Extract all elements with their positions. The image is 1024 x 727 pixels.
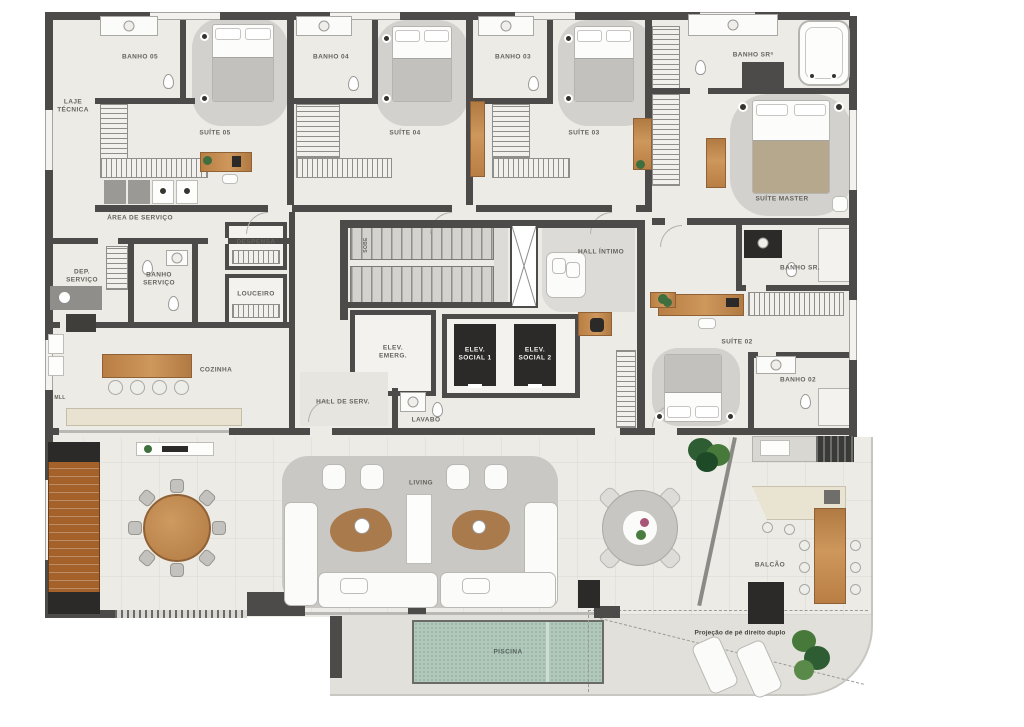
suite03-lamp-1 [564, 34, 573, 43]
wall-banho-sr-l [736, 225, 742, 290]
suite05-lamp-1 [200, 32, 209, 41]
label-banho-03: BANHO 03 [495, 54, 531, 61]
living-armchair-3 [446, 464, 470, 490]
adega-unit [48, 442, 100, 614]
suite03-closet-left [492, 104, 530, 158]
wall-suites-bottom [95, 205, 645, 212]
kitchen-counter [66, 408, 242, 426]
stairs-landing [494, 226, 508, 304]
label-lavabo: LAVABO [412, 417, 441, 424]
suite05-chair [222, 174, 238, 184]
wall-core-left [340, 220, 348, 320]
hall-desk-chair [590, 318, 604, 332]
suite04-lamp-1 [382, 34, 391, 43]
wall-varanda-1 [45, 428, 59, 435]
wall-core-top [340, 220, 645, 228]
wall-kitchen-core [289, 205, 295, 435]
door-hallserv [310, 428, 332, 435]
suite02-lamp-2 [726, 412, 735, 421]
deck-wall-left [330, 616, 342, 678]
balcao-stool-6 [850, 540, 861, 551]
wall-banho05-r [180, 12, 186, 102]
label-louceiro: LOUCEIRO [237, 291, 274, 298]
door-suite02 [655, 428, 677, 435]
label-elev-emerg: ELEV. EMERG. [373, 345, 413, 362]
label-banho-servico: BANHO SERVIÇO [137, 272, 181, 289]
wall-right [849, 16, 857, 437]
balcao-stool-2 [784, 524, 795, 535]
door-master [665, 218, 687, 225]
island-stool-1 [108, 380, 123, 395]
wall-banho-sra-block [742, 62, 784, 92]
elevator-shaft-x [510, 224, 538, 308]
terrace-pillar-2 [578, 580, 600, 608]
elev2-door [528, 384, 542, 388]
washer-1-door [158, 186, 168, 196]
sliding-door-living [305, 612, 595, 615]
label-banho-sr: BANHO SR. [780, 265, 820, 272]
suite02-closet [748, 292, 844, 316]
wall-bserv-r [192, 244, 198, 324]
suite04-bed [392, 26, 452, 102]
banho-sra-tap-2 [830, 72, 838, 80]
label-banho-05: BANHO 05 [122, 54, 158, 61]
sliding-door-kitchen [59, 430, 229, 433]
suite02-lamp-1 [655, 412, 664, 421]
gourmet-sink [760, 440, 790, 456]
hall-intimo-pillow [552, 258, 566, 274]
master-cabinet [706, 138, 726, 188]
label-suite-03: SUÍTE 03 [568, 130, 599, 137]
living-sofa-bottom-1 [318, 572, 438, 608]
suite03-plant [636, 160, 645, 169]
wall-banho02-l [748, 352, 754, 430]
door-suite03 [612, 205, 636, 212]
label-dep-servico: DEP. SERVIÇO [60, 269, 104, 286]
balcao-item [824, 490, 840, 504]
label-projecao: Projeção de pé direito duplo [694, 630, 785, 637]
label-elev-social-1: ELEV. SOCIAL 1 [457, 347, 493, 364]
living-armchair-1 [322, 464, 346, 490]
suite03-wardrobe [470, 101, 485, 177]
laundry-machine-2 [128, 180, 150, 204]
label-banho-04: BANHO 04 [313, 54, 349, 61]
console-plant [144, 445, 152, 453]
wall-banho03-r [547, 12, 553, 102]
dining-chair-5 [170, 563, 184, 577]
suite04-lamp-2 [382, 94, 391, 103]
adega-top [48, 442, 100, 462]
banho04-toilet [348, 76, 359, 91]
island-stool-4 [174, 380, 189, 395]
terrace-table-flower [640, 518, 649, 527]
label-hall-serv: HALL DE SERV. [316, 399, 370, 406]
living-cushion-1 [340, 578, 368, 594]
wall-dep-bserv [128, 244, 134, 324]
kitchen-tall-oven-2 [48, 356, 64, 376]
adega-bottom [48, 592, 100, 614]
terrace-pillar-1 [748, 582, 784, 624]
suite05-lamp-2 [200, 94, 209, 103]
master-lamp-1 [738, 102, 748, 112]
wall-banho04 [290, 98, 378, 104]
floor-plan: LAJE TÉCNICA BANHO 05 SUÍTE 05 BANHO 04 … [0, 0, 1024, 727]
wall-core-right [637, 220, 645, 435]
door-hallintimo-living [595, 428, 620, 435]
label-banho-sra: BANHO SRª [733, 52, 774, 59]
living-armchair-2 [360, 464, 384, 490]
balcao-stool-5 [799, 584, 810, 595]
coffee-tray-1 [354, 518, 370, 534]
dining-table [143, 494, 211, 562]
window-top-1 [150, 12, 220, 20]
louceiro-shelf [232, 304, 280, 318]
door-bserv [208, 238, 228, 244]
label-living: LIVING [409, 480, 433, 487]
banho05-vanity [100, 16, 158, 36]
door-banho-sr [746, 285, 766, 291]
gourmet-grill [816, 436, 854, 462]
door-suite05 [268, 205, 292, 212]
hall-intimo-pillow-2 [566, 262, 580, 278]
banho-sr-basin [752, 234, 774, 252]
cooktop [66, 314, 96, 332]
dining-chair-3 [212, 521, 226, 535]
banho03-vanity [478, 16, 534, 36]
banho-sra-bathtub [798, 20, 850, 86]
banho-sra-tap-1 [808, 72, 816, 80]
suite05-laptop [232, 156, 241, 167]
master-closet-corridor [652, 26, 680, 186]
terrace-plant-1c [696, 452, 718, 472]
window-right-2 [849, 300, 857, 360]
balcao-stool-1 [762, 522, 773, 533]
banho-sr-shower [818, 228, 850, 282]
label-piscina: PISCINA [493, 649, 522, 656]
label-cozinha: COZINHA [200, 367, 232, 374]
banho03-toilet [528, 76, 539, 91]
stairs-lower-flight [350, 266, 494, 304]
terrace-table-plant [636, 530, 646, 540]
dep-servico-closet [106, 246, 128, 290]
suite02-chair [698, 318, 716, 329]
label-area-servico: ÁREA DE SERVIÇO [107, 215, 173, 222]
coffee-tray-2 [472, 520, 486, 534]
label-suite-04: SUÍTE 04 [389, 130, 420, 137]
banho-sra-vanity [688, 14, 778, 36]
suite04-closet-left [296, 104, 340, 158]
label-balcao: BALCÃO [755, 562, 785, 569]
banho04-vanity [296, 16, 352, 36]
suite05-closet-left [100, 104, 128, 160]
island-stool-2 [130, 380, 145, 395]
suite05-plant [203, 156, 212, 165]
wall-suite3-corridor [645, 12, 652, 212]
balcao-stool-3 [799, 540, 810, 551]
label-mll: MLL [54, 395, 65, 401]
window-left-1 [45, 110, 53, 170]
banho-sra-toilet [695, 60, 706, 75]
console-items [162, 446, 188, 452]
living-sofa-bottom-2 [440, 572, 556, 608]
suite05-bed [212, 24, 274, 102]
dining-chair-7 [128, 521, 142, 535]
label-suite-02: SUÍTE 02 [721, 339, 752, 346]
label-banho-02: BANHO 02 [780, 377, 816, 384]
elev1-door [468, 384, 482, 388]
wall-varanda-2 [229, 428, 295, 435]
hall-sideboard-plant [658, 294, 668, 304]
suite02-laptop [726, 298, 739, 307]
suite03-closet-bottom [492, 158, 570, 178]
living-cushion-2 [462, 578, 490, 594]
door-dep [98, 238, 118, 244]
banho05-toilet [163, 74, 174, 89]
deck-plant-c [794, 660, 814, 680]
window-right-1 [849, 110, 857, 190]
suite05-closet-bottom [100, 158, 208, 178]
railing-dining [115, 610, 247, 618]
living-armchair-4 [484, 464, 508, 490]
label-sobe: SOBE [363, 237, 369, 252]
master-bed [752, 100, 830, 194]
label-laje-tecnica: LAJE TÉCNICA [52, 99, 94, 116]
despensa-shelf [232, 250, 280, 264]
label-suite-master: SUÍTE MASTER [755, 196, 808, 203]
laundry-machine-1 [104, 180, 126, 204]
banho-servico-toilet [168, 296, 179, 311]
wall-core-bottom [295, 428, 645, 435]
island-stool-3 [152, 380, 167, 395]
master-bench [832, 196, 848, 212]
wall-suite54 [287, 12, 294, 205]
balcao-stool-8 [850, 584, 861, 595]
living-center-table [406, 494, 432, 564]
banho02-shower [818, 388, 850, 426]
banho02-toilet [800, 394, 811, 409]
label-suite-05: SUÍTE 05 [199, 130, 230, 137]
washer-2-door [182, 186, 192, 196]
door-banho-sra [690, 88, 708, 94]
master-lamp-2 [834, 102, 844, 112]
wall-lavabo-l [392, 388, 398, 428]
label-hall-intimo: HALL ÍNTIMO [578, 249, 624, 256]
suite03-bed [574, 26, 634, 102]
lavabo-toilet [432, 402, 443, 417]
kitchen-tall-oven-1 [48, 334, 64, 354]
wall-banho04-r [372, 12, 378, 102]
label-despensa: DESPENSA [237, 239, 276, 246]
banho-servico-basin [166, 250, 188, 266]
suite03-lamp-2 [564, 94, 573, 103]
balcao-wood-counter [814, 508, 846, 604]
pool-lane-line [546, 622, 549, 682]
balcao-stool-7 [850, 562, 861, 573]
door-suite04 [452, 205, 476, 212]
dining-chair-1 [170, 479, 184, 493]
balcao-stool-4 [799, 562, 810, 573]
living-sofa-left [284, 502, 318, 606]
banho02-vanity [756, 356, 796, 374]
stairs [350, 226, 494, 260]
kitchen-island [102, 354, 192, 378]
label-elev-social-2: ELEV. SOCIAL 2 [517, 347, 553, 364]
lavabo-vanity [400, 392, 426, 412]
suite02-bed [664, 354, 722, 422]
terrace-table-top [622, 510, 658, 546]
wall-stairs-bottom [348, 302, 510, 308]
dep-servico-sink [58, 291, 71, 304]
louceiro-box [225, 274, 287, 326]
suite04-closet-bottom [296, 158, 392, 178]
hall-closet [616, 350, 636, 428]
